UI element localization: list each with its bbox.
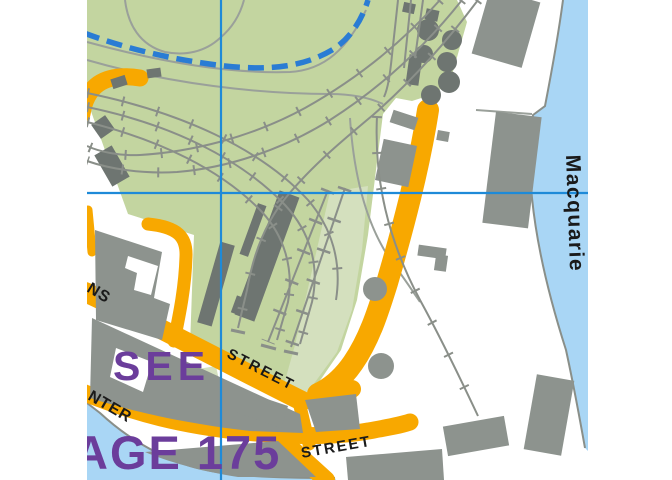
page-margin-left xyxy=(0,0,87,480)
wharf-shed-north xyxy=(472,0,541,68)
city-block-south-east xyxy=(346,449,444,480)
gas-tank-south xyxy=(368,353,394,379)
oil-tank xyxy=(437,52,457,72)
page-ref-see: SEE xyxy=(113,343,210,389)
building-roadside-1 xyxy=(390,110,419,130)
street-map-page[interactable]: SEE AGE 175 STREET STREET NS NTER Macqua… xyxy=(0,0,672,480)
street-label-macquarie: Macquarie xyxy=(561,154,588,272)
page-ref-number: AGE 175 xyxy=(74,426,281,479)
page-margin-right xyxy=(588,0,672,480)
wharf-shed-south xyxy=(524,374,575,455)
building-lower-horizontal xyxy=(443,416,509,456)
city-block-large xyxy=(95,230,170,340)
t-building-stem xyxy=(434,254,448,272)
building-roadside-3 xyxy=(436,130,450,142)
oil-tank xyxy=(438,71,460,93)
road-junction-stub-east xyxy=(318,389,352,394)
gas-tank-west xyxy=(363,277,387,301)
road-margin-stub xyxy=(88,210,92,252)
map-canvas: SEE AGE 175 STREET STREET NS NTER Macqua… xyxy=(0,0,672,480)
oil-tank xyxy=(421,85,441,105)
block-near-junction xyxy=(305,394,360,432)
